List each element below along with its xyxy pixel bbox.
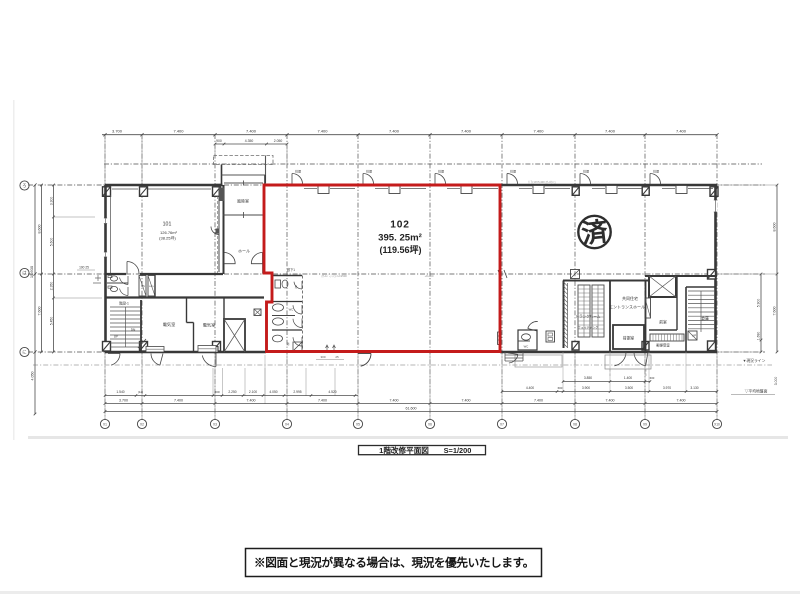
svg-text:排煙: 排煙 <box>583 169 589 174</box>
svg-text:トランクルーム: トランクルーム <box>576 314 601 319</box>
svg-text:3.500: 3.500 <box>625 386 633 390</box>
svg-text:7.400: 7.400 <box>390 398 399 402</box>
svg-text:※図面と現況が異なる場合は、現況を優先いたします。: ※図面と現況が異なる場合は、現況を優先いたします。 <box>254 556 534 570</box>
svg-text:共同住宅: 共同住宅 <box>622 295 638 301</box>
svg-text:15.600: 15.600 <box>29 265 34 278</box>
svg-text:(119.56坪): (119.56坪) <box>379 244 421 255</box>
svg-text:廊下1: 廊下1 <box>287 267 295 272</box>
svg-text:WC: WC <box>524 345 529 349</box>
svg-text:7.600: 7.600 <box>38 307 42 316</box>
svg-text:倉庫: 倉庫 <box>701 316 709 321</box>
svg-text:1.400: 1.400 <box>624 376 632 380</box>
svg-text:UP: UP <box>114 335 118 339</box>
svg-text:4.050: 4.050 <box>31 372 35 381</box>
svg-text:7.400: 7.400 <box>606 398 615 402</box>
svg-text:DN: DN <box>131 328 136 332</box>
svg-text:25: 25 <box>335 355 339 359</box>
svg-text:3.300: 3.300 <box>50 197 54 206</box>
svg-text:X3: X3 <box>213 423 217 427</box>
svg-text:900: 900 <box>216 139 222 143</box>
svg-text:8.600: 8.600 <box>773 223 777 232</box>
svg-text:7.400: 7.400 <box>605 128 616 133</box>
svg-text:ウェイティング: ウェイティング <box>578 325 599 330</box>
svg-text:X6: X6 <box>428 423 432 427</box>
svg-text:3.130: 3.130 <box>690 386 698 390</box>
svg-text:7.400: 7.400 <box>461 128 472 133</box>
svg-text:ｶﾞﾗｽ W=5,400 ｽﾁｰﾙｻｯｼｭ: ｶﾞﾗｽ W=5,400 ｽﾁｰﾙｻｯｼｭ <box>528 180 556 184</box>
svg-text:1.690: 1.690 <box>757 332 761 341</box>
svg-text:4.350: 4.350 <box>245 139 254 143</box>
svg-text:7.400: 7.400 <box>534 398 543 402</box>
svg-text:前室: 前室 <box>659 320 667 325</box>
svg-text:(38.25坪): (38.25坪) <box>159 235 176 241</box>
svg-text:PS: PS <box>141 284 145 288</box>
svg-text:X1: X1 <box>103 423 107 427</box>
svg-text:4.050: 4.050 <box>269 390 277 394</box>
svg-text:+FL100: +FL100 <box>425 274 434 278</box>
svg-text:2.100: 2.100 <box>249 390 257 394</box>
svg-text:階段-1: 階段-1 <box>119 301 129 306</box>
svg-text:X4: X4 <box>285 423 289 427</box>
svg-text:▼現況ライン: ▼現況ライン <box>743 358 766 363</box>
svg-text:エントランスホール: エントランスホール <box>609 304 645 310</box>
svg-text:61.600: 61.600 <box>406 406 417 410</box>
svg-text:5.600: 5.600 <box>50 238 54 247</box>
svg-text:電気室: 電気室 <box>203 322 216 329</box>
svg-text:1.540: 1.540 <box>116 390 124 394</box>
svg-text:S=1/200: S=1/200 <box>444 446 472 455</box>
svg-text:7.400: 7.400 <box>533 128 544 133</box>
svg-text:3.900: 3.900 <box>582 386 590 390</box>
svg-text:102: 102 <box>390 220 409 231</box>
svg-text:▽平均地盤面: ▽平均地盤面 <box>745 389 768 394</box>
svg-text:X9: X9 <box>643 423 647 427</box>
svg-text:排煙: 排煙 <box>295 169 301 174</box>
svg-text:X8: X8 <box>573 423 577 427</box>
svg-text:7.400: 7.400 <box>317 128 328 133</box>
svg-text:X5: X5 <box>356 423 360 427</box>
svg-text:7.600: 7.600 <box>773 307 777 316</box>
svg-text:7.400: 7.400 <box>677 398 686 402</box>
svg-text:排煙: 排煙 <box>366 169 372 174</box>
svg-text:7.400: 7.400 <box>174 398 183 402</box>
svg-text:4.520: 4.520 <box>328 390 336 394</box>
svg-text:4.400: 4.400 <box>526 386 534 390</box>
svg-text:3.970: 3.970 <box>663 386 671 390</box>
svg-text:3.850: 3.850 <box>584 376 592 380</box>
svg-text:X10: X10 <box>714 423 720 427</box>
svg-text:荷捌室: 荷捌室 <box>623 336 635 341</box>
svg-text:101: 101 <box>163 222 172 228</box>
svg-text:7.400: 7.400 <box>676 128 687 133</box>
svg-text:5.900: 5.900 <box>757 299 761 308</box>
svg-text:300: 300 <box>320 355 325 359</box>
svg-text:2.350: 2.350 <box>50 282 54 291</box>
svg-text:電気室: 電気室 <box>163 321 176 328</box>
svg-text:3.000: 3.000 <box>774 377 778 386</box>
svg-text:1階改修平面図: 1階改修平面図 <box>379 445 429 455</box>
svg-text:(12): (12) <box>138 390 143 394</box>
svg-text:排煙: 排煙 <box>438 169 444 174</box>
svg-text:ｽﾁｰﾙﾊﾟｰﾃｨｼｮﾝ H=2500: ｽﾁｰﾙﾊﾟｰﾃｨｼｮﾝ H=2500 <box>321 274 347 278</box>
svg-text:EPS: EPS <box>149 286 154 288</box>
svg-text:600: 600 <box>558 386 563 390</box>
svg-text:3.700: 3.700 <box>112 128 123 133</box>
svg-text:排煙: 排煙 <box>653 169 659 174</box>
svg-text:7.400: 7.400 <box>246 128 257 133</box>
svg-text:600: 600 <box>650 376 655 380</box>
svg-text:郵便受室: 郵便受室 <box>656 343 670 348</box>
svg-text:7.400: 7.400 <box>247 398 256 402</box>
svg-text:126.76m²: 126.76m² <box>160 230 178 235</box>
svg-text:8.600: 8.600 <box>38 225 42 234</box>
svg-text:X2: X2 <box>140 423 144 427</box>
svg-text:395. 25m²: 395. 25m² <box>378 233 422 244</box>
svg-text:7.400: 7.400 <box>173 128 184 133</box>
svg-text:風除室: 風除室 <box>237 198 249 204</box>
svg-text:X7: X7 <box>500 423 504 427</box>
svg-text:2.995: 2.995 <box>293 390 301 394</box>
svg-text:7.400: 7.400 <box>462 398 471 402</box>
svg-text:100 25: 100 25 <box>79 266 89 270</box>
svg-text:済: 済 <box>580 216 610 249</box>
svg-text:ホール: ホール <box>238 249 250 254</box>
svg-text:2.250: 2.250 <box>228 390 236 394</box>
svg-text:2.050: 2.050 <box>274 139 283 143</box>
svg-text:7.400: 7.400 <box>318 398 327 402</box>
svg-text:300: 300 <box>214 390 219 394</box>
svg-text:3.700: 3.700 <box>119 398 128 402</box>
svg-text:排煙: 排煙 <box>510 169 516 174</box>
svg-text:湯: 湯 <box>287 342 290 346</box>
svg-text:5.450: 5.450 <box>50 317 54 326</box>
svg-text:7.400: 7.400 <box>389 128 400 133</box>
svg-text:WC: WC <box>289 308 294 312</box>
